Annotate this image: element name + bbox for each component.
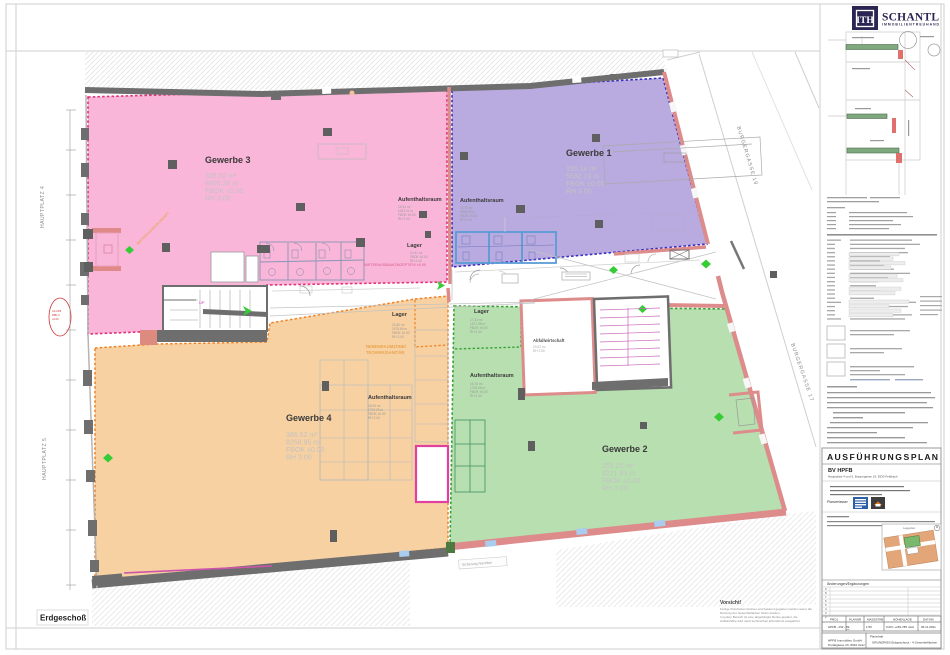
svg-text:WBL 2: WBL 2 xyxy=(52,313,60,317)
svg-text:BURGERGASSE 17: BURGERGASSE 17 xyxy=(789,343,815,403)
svg-text:Änderungen/Ergänzungen: Änderungen/Ergänzungen xyxy=(827,582,869,586)
svg-text:Lager: Lager xyxy=(407,243,423,249)
svg-text:BV HPFB: BV HPFB xyxy=(828,468,853,474)
svg-text:MIETERAUSBAUKONZEPT/FIX ±0.00: MIETERAUSBAUKONZEPT/FIX ±0.00 xyxy=(364,263,426,267)
svg-text:UA 23/5: UA 23/5 xyxy=(52,309,62,313)
svg-text:Lager: Lager xyxy=(474,309,490,315)
svg-text:309.02 m²: 309.02 m² xyxy=(205,173,237,180)
svg-text:DATUM: DATUM xyxy=(923,618,934,622)
svg-text:155.24 m²: 155.24 m² xyxy=(566,166,598,173)
svg-text:0.00= +281,785 müA: 0.00= +281,785 müA xyxy=(886,625,914,629)
svg-text:Aufenthaltsraum: Aufenthaltsraum xyxy=(460,198,504,204)
svg-text:Gewerbe 3: Gewerbe 3 xyxy=(205,155,251,165)
svg-text:ITH: ITH xyxy=(856,16,874,26)
svg-text:1:50: 1:50 xyxy=(866,625,872,629)
svg-text:Gewerbe 4: Gewerbe 4 xyxy=(286,413,332,423)
svg-text:Aufenthaltsraum: Aufenthaltsraum xyxy=(470,373,514,379)
svg-text:RH 3.00: RH 3.00 xyxy=(566,189,592,196)
svg-text:+0.00: +0.00 xyxy=(52,317,59,321)
svg-text:TECHNIK/SANITÄR: TECHNIK/SANITÄR xyxy=(366,350,404,355)
svg-text:RH 3.00: RH 3.00 xyxy=(205,196,231,203)
svg-text:RH 2.44: RH 2.44 xyxy=(470,394,482,398)
svg-text:HÖHENLAGE: HÖHENLAGE xyxy=(893,618,912,622)
svg-text:PROJ.: PROJ. xyxy=(830,618,839,622)
svg-text:A U S F Ü H R U N G S P L A N: A U S F Ü H R U N G S P L A N xyxy=(827,452,938,462)
svg-text:Gewerbe 1: Gewerbe 1 xyxy=(566,148,612,158)
svg-text:HAUPTPLATZ 4: HAUPTPLATZ 4 xyxy=(40,186,46,228)
svg-text:Gewerbe 2: Gewerbe 2 xyxy=(602,444,648,454)
svg-text:BURGERGASSE 19: BURGERGASSE 19 xyxy=(735,126,759,186)
svg-text:RH 2.44: RH 2.44 xyxy=(470,330,482,334)
svg-text:MASSSTAB: MASSSTAB xyxy=(867,618,883,622)
svg-text:NEBENRAUMZONE/: NEBENRAUMZONE/ xyxy=(366,344,407,349)
svg-text:RH 2.44: RH 2.44 xyxy=(460,218,472,222)
svg-text:HPFB - FW - 09: HPFB - FW - 09 xyxy=(828,625,850,629)
svg-text:Vorsicht!: Vorsicht! xyxy=(720,600,742,606)
svg-text:Lageplan: Lageplan xyxy=(903,526,916,530)
svg-text:RH 2.44: RH 2.44 xyxy=(398,217,410,221)
svg-text:FBOK ±0.00: FBOK ±0.00 xyxy=(286,447,325,454)
svg-text:Portalgasse 23, 8010 Graz: Portalgasse 23, 8010 Graz xyxy=(828,643,865,647)
svg-text:HPFB Immobilien GmbH: HPFB Immobilien GmbH xyxy=(828,639,862,643)
svg-text:IMMOBILIENTREUHAND: IMMOBILIENTREUHAND xyxy=(882,23,940,27)
svg-text:9221.83 m: 9221.83 m xyxy=(602,471,635,478)
svg-text:RH 2.50: RH 2.50 xyxy=(533,349,545,353)
svg-text:386.52 m²: 386.52 m² xyxy=(286,432,318,439)
svg-text:FBOK ±0.00: FBOK ±0.00 xyxy=(602,478,641,485)
svg-text:Aufenthaltsraum: Aufenthaltsraum xyxy=(398,197,442,203)
svg-text:HAUPTPLATZ 5: HAUPTPLATZ 5 xyxy=(42,438,48,480)
svg-text:PLANNR: PLANNR xyxy=(849,618,862,622)
svg-text:RH 2.44: RH 2.44 xyxy=(368,416,380,420)
svg-text:RH 3.00: RH 3.00 xyxy=(286,455,312,462)
svg-text:Aufenthaltsraum: Aufenthaltsraum xyxy=(368,395,412,401)
svg-text:8605.36 m: 8605.36 m xyxy=(205,181,238,188)
svg-text:Erdgeschoß: Erdgeschoß xyxy=(40,614,86,623)
svg-text:Planinhalt: Planinhalt xyxy=(870,635,883,639)
svg-text:255.25 m²: 255.25 m² xyxy=(602,463,634,470)
svg-text:GRUNDRISS Erdgeschoss - 4 Ge: GRUNDRISS Erdgeschoss - 4 Gewerbeflächen xyxy=(872,641,937,645)
svg-text:RH 2.44: RH 2.44 xyxy=(410,259,422,263)
svg-text:Aufbauhöhe wird nach technisc: Aufbauhöhe wird nach technischen Erforde… xyxy=(720,619,800,623)
svg-text:RH 2.44: RH 2.44 xyxy=(392,335,404,339)
svg-text:UP: UP xyxy=(199,300,205,305)
svg-text:05.11.2021: 05.11.2021 xyxy=(921,625,936,629)
svg-text:5682.19 m: 5682.19 m xyxy=(566,174,599,181)
svg-text:FBOK ±0.00: FBOK ±0.00 xyxy=(566,181,605,188)
svg-text:Lager: Lager xyxy=(392,312,408,318)
svg-text:FBOK ±0.00: FBOK ±0.00 xyxy=(205,188,244,195)
svg-text:Planverfasser: Planverfasser xyxy=(827,500,849,504)
svg-text:RH 3.00: RH 3.00 xyxy=(602,486,628,493)
svg-text:Hauptplatz 4 und 5, Burgergass: Hauptplatz 4 und 5, Burgergasse 19, 8330… xyxy=(828,475,898,479)
svg-text:Abfallwirtschaft: Abfallwirtschaft xyxy=(533,338,565,343)
svg-text:8258.95 m: 8258.95 m xyxy=(286,440,319,447)
